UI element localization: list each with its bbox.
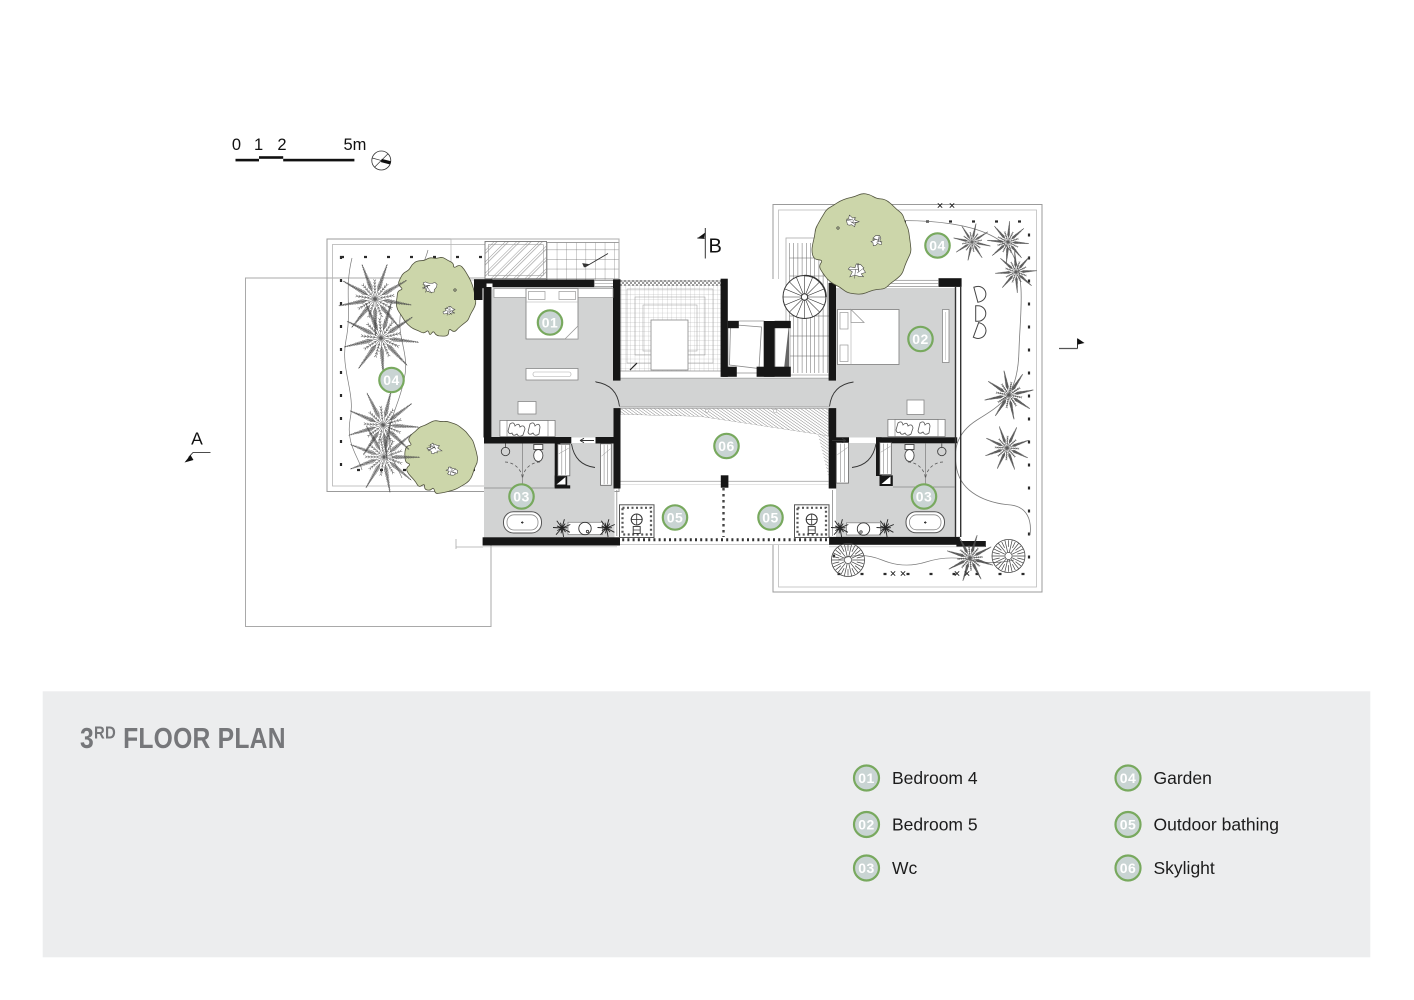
svg-text:03: 03 (513, 489, 530, 505)
svg-text:Garden: Garden (1154, 768, 1212, 788)
svg-text:Wc: Wc (892, 858, 918, 878)
svg-text:Bedroom 4: Bedroom 4 (892, 768, 978, 788)
svg-text:02: 02 (912, 331, 929, 347)
svg-text:5m: 5m (344, 136, 367, 154)
svg-text:B: B (709, 236, 722, 258)
svg-text:A: A (191, 429, 203, 449)
svg-text:06: 06 (1120, 860, 1137, 876)
svg-text:1: 1 (254, 136, 263, 154)
svg-text:01: 01 (542, 315, 559, 331)
svg-text:02: 02 (858, 817, 875, 833)
svg-text:2: 2 (277, 136, 286, 154)
svg-text:05: 05 (667, 510, 684, 526)
svg-text:04: 04 (929, 238, 946, 254)
svg-text:01: 01 (858, 770, 875, 786)
svg-text:05: 05 (1120, 817, 1137, 833)
svg-text:Skylight: Skylight (1154, 858, 1215, 878)
svg-text:Bedroom 5: Bedroom 5 (892, 815, 978, 835)
svg-text:04: 04 (1120, 770, 1137, 786)
svg-text:04: 04 (383, 372, 400, 388)
svg-text:Outdoor bathing: Outdoor bathing (1154, 815, 1280, 835)
svg-text:03: 03 (858, 860, 875, 876)
svg-text:0: 0 (232, 136, 241, 154)
svg-text:03: 03 (916, 489, 933, 505)
svg-text:05: 05 (762, 510, 779, 526)
svg-text:06: 06 (718, 438, 735, 454)
